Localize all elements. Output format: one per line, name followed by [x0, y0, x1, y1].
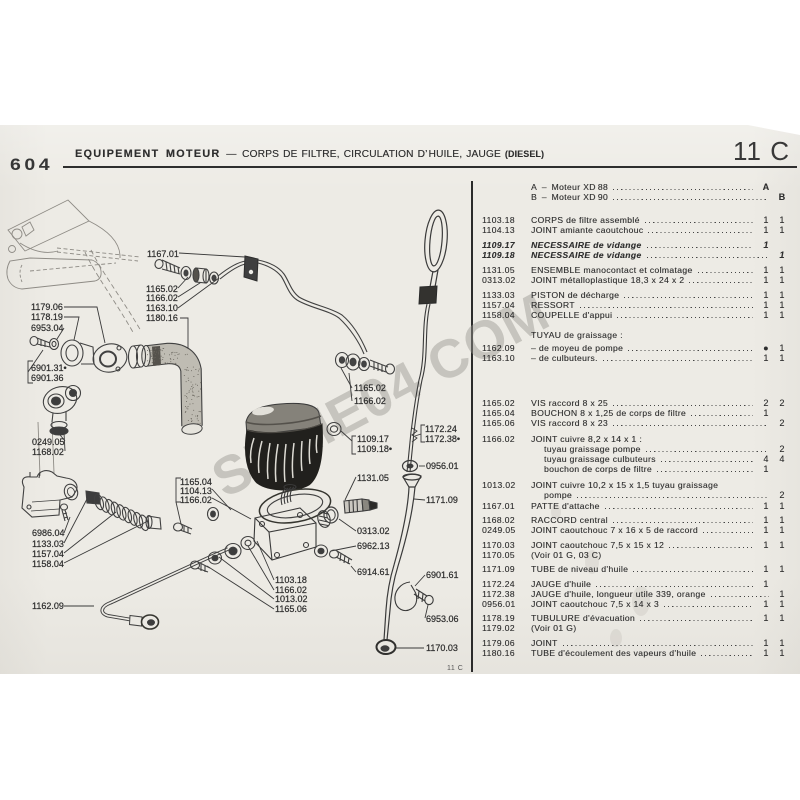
svg-text:1162.09: 1162.09 [32, 601, 64, 611]
svg-text:1171.09: 1171.09 [426, 495, 458, 505]
svg-text:1133.03: 1133.03 [32, 539, 64, 549]
svg-text:1166.02: 1166.02 [146, 293, 178, 303]
svg-text:0249.05: 0249.05 [32, 437, 65, 447]
svg-text:1158.04: 1158.04 [32, 559, 64, 569]
svg-text:1109.17: 1109.17 [357, 434, 389, 444]
svg-text:6962.13: 6962.13 [357, 541, 390, 551]
svg-text:0956.01: 0956.01 [426, 461, 459, 471]
svg-text:1172.38•: 1172.38• [425, 434, 460, 444]
svg-text:1168.02: 1168.02 [32, 447, 64, 457]
svg-text:6914.61: 6914.61 [357, 567, 390, 577]
svg-text:1165.06: 1165.06 [275, 604, 307, 614]
svg-text:1157.04: 1157.04 [32, 549, 64, 559]
svg-text:6901.31•: 6901.31• [31, 363, 67, 373]
svg-text:1165.02: 1165.02 [354, 383, 386, 393]
svg-text:1172.24: 1172.24 [425, 424, 457, 434]
svg-text:0313.02: 0313.02 [357, 526, 390, 536]
svg-text:1163.10: 1163.10 [146, 303, 178, 313]
svg-text:1166.02: 1166.02 [180, 495, 212, 505]
svg-text:6953.06: 6953.06 [426, 614, 459, 624]
svg-text:1178.19: 1178.19 [31, 312, 63, 322]
svg-text:1109.18•: 1109.18• [357, 444, 392, 454]
svg-text:6986.04: 6986.04 [32, 528, 65, 538]
svg-text:6901.61: 6901.61 [426, 570, 459, 580]
svg-text:1180.16: 1180.16 [146, 313, 178, 323]
svg-text:6953.04: 6953.04 [31, 323, 64, 333]
svg-text:6901.36: 6901.36 [31, 373, 64, 383]
svg-text:1166.02: 1166.02 [354, 396, 386, 406]
svg-text:1103.18: 1103.18 [275, 575, 307, 585]
svg-text:1170.03: 1170.03 [426, 643, 458, 653]
svg-text:1013.02: 1013.02 [275, 594, 308, 604]
svg-text:1167.01: 1167.01 [147, 249, 179, 259]
svg-text:1179.06: 1179.06 [31, 302, 63, 312]
svg-text:1131.05: 1131.05 [357, 473, 389, 483]
